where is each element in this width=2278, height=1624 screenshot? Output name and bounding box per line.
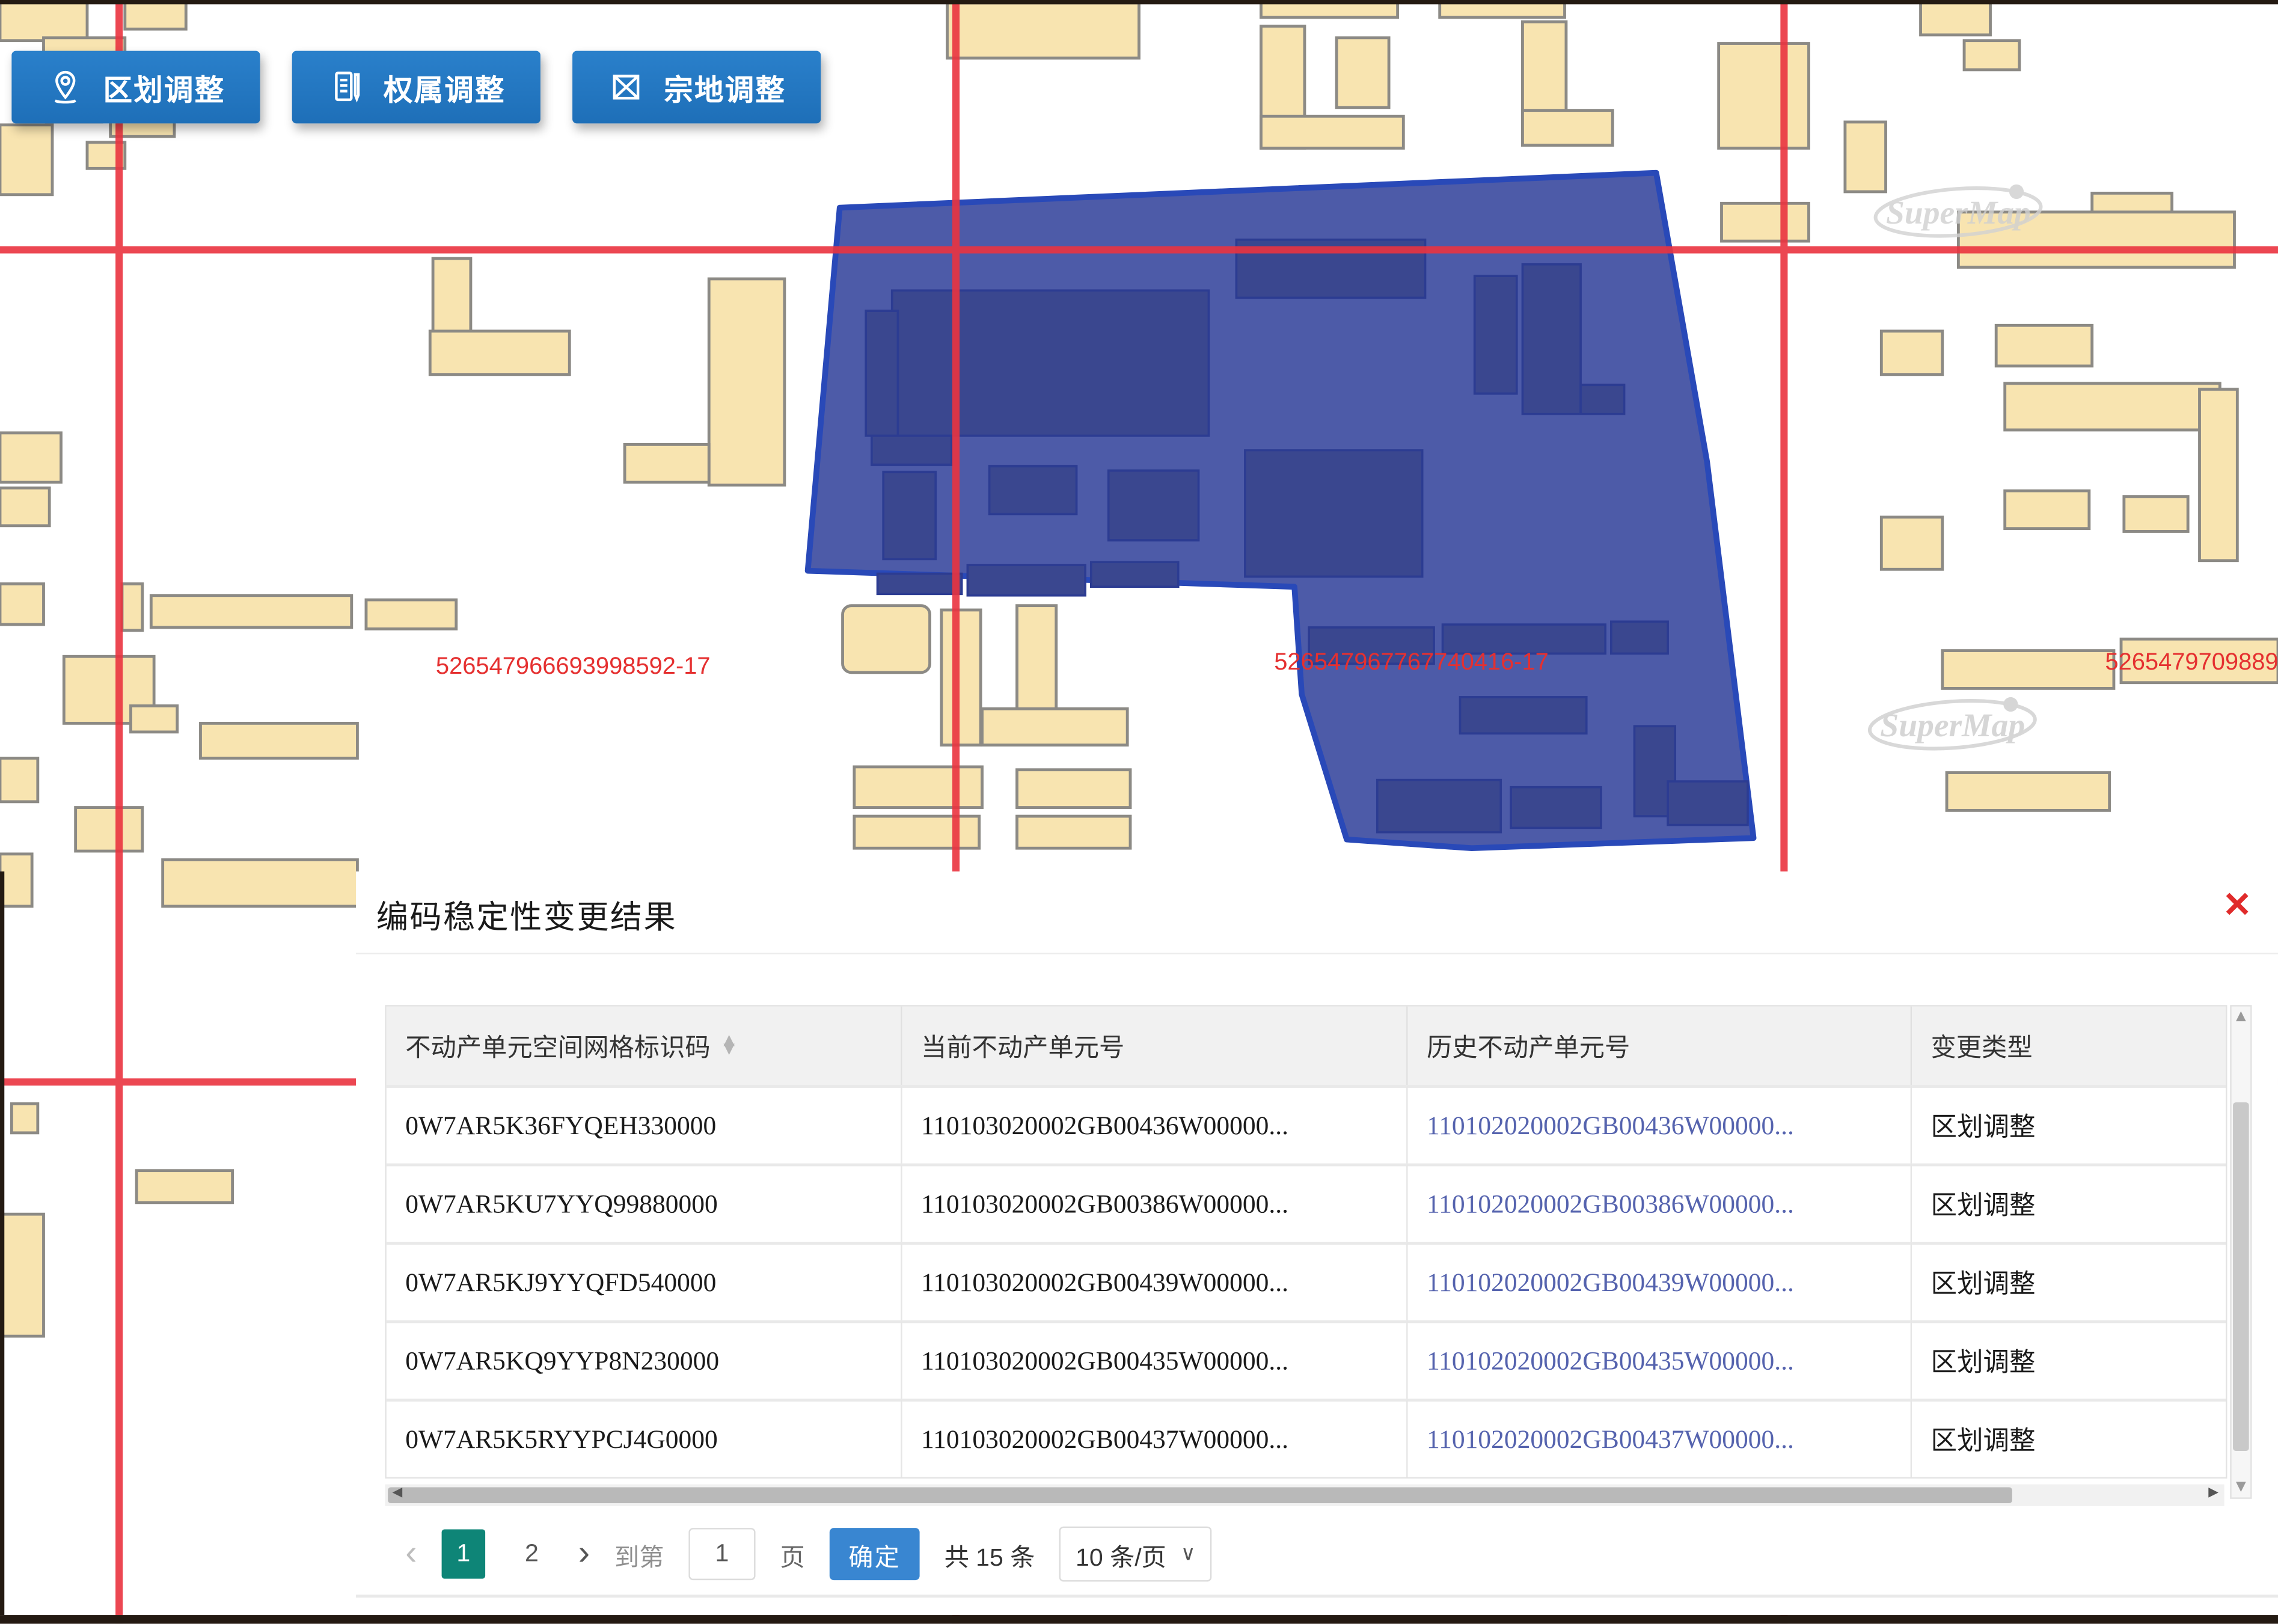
location-pin-icon xyxy=(46,69,84,106)
window-edge-left xyxy=(0,872,4,1615)
page-button-1[interactable]: 1 xyxy=(442,1530,485,1579)
confirm-button[interactable]: 确定 xyxy=(830,1528,920,1580)
panel-divider xyxy=(356,953,2278,954)
sort-icon[interactable]: ▲▼ xyxy=(723,1037,735,1055)
table-vertical-scrollbar[interactable]: ▲ ▼ xyxy=(2230,1005,2252,1499)
goto-page-input[interactable] xyxy=(688,1528,755,1580)
ownership-adjust-label: 权属调整 xyxy=(384,66,506,108)
ownership-adjust-button[interactable]: 权属调整 xyxy=(292,51,540,124)
map-toolbar: 区划调整 权属调整 宗地调整 xyxy=(11,51,821,124)
goto-page-label: 到第 xyxy=(614,1536,664,1572)
parcel-adjust-label: 宗地调整 xyxy=(664,66,786,108)
history-unit-link[interactable]: 110102020002GB00386W00000... xyxy=(1408,1164,1912,1242)
column-header-grid-code[interactable]: 不动产单元空间网格标识码 ▲▼ xyxy=(387,1007,902,1085)
page-unit-label: 页 xyxy=(780,1536,805,1572)
history-unit-link[interactable]: 110102020002GB00436W00000... xyxy=(1408,1085,1912,1163)
cell-current-unit: 110103020002GB00436W00000... xyxy=(902,1085,1408,1163)
cell-change-type: 区划调整 xyxy=(1912,1242,2226,1320)
svg-text:SuperMap: SuperMap xyxy=(1880,707,2025,744)
cell-change-type: 区划调整 xyxy=(1912,1164,2226,1242)
cell-current-unit: 110103020002GB00437W00000... xyxy=(902,1399,1408,1477)
selected-parcel-polygon[interactable] xyxy=(808,173,1754,849)
app-window: SuperMap SuperMap 526547966693998592-17 … xyxy=(0,0,2278,1624)
parcel-label: 5265479709889 xyxy=(2105,649,2278,675)
supermap-watermark: SuperMap xyxy=(1868,696,2036,754)
chevron-down-icon: ∨ xyxy=(1181,1542,1196,1566)
cell-current-unit: 110103020002GB00386W00000... xyxy=(902,1164,1408,1242)
cell-change-type: 区划调整 xyxy=(1912,1085,2226,1163)
close-icon[interactable]: ✕ xyxy=(2223,889,2252,924)
cell-grid-code: 0W7AR5K5RYYPCJ4G0000 xyxy=(387,1399,902,1477)
scroll-right-icon[interactable]: ▶ xyxy=(2208,1486,2218,1500)
change-result-panel: 编码稳定性变更结果 ✕ 不动产单元空间网格标识码 ▲▼ 当前不动产单元号 历史不… xyxy=(356,872,2278,1615)
total-count-label: 共 15 条 xyxy=(945,1536,1035,1572)
cell-grid-code: 0W7AR5KJ9YYQFD540000 xyxy=(387,1242,902,1320)
scroll-down-icon[interactable]: ▼ xyxy=(2232,1480,2250,1494)
cell-change-type: 区划调整 xyxy=(1912,1399,2226,1477)
column-header-current-unit: 当前不动产单元号 xyxy=(902,1007,1408,1085)
svg-text:SuperMap: SuperMap xyxy=(1886,194,2031,231)
window-edge-bottom xyxy=(0,1615,2278,1623)
parcel-frame-icon xyxy=(607,69,645,106)
cell-current-unit: 110103020002GB00439W00000... xyxy=(902,1242,1408,1320)
pagination-bar: ‹ 1 2 › 到第 页 确定 共 15 条 10 条/页 ∨ xyxy=(405,1528,1211,1580)
vertical-scroll-thumb[interactable] xyxy=(2233,1102,2249,1451)
change-result-table: 不动产单元空间网格标识码 ▲▼ 当前不动产单元号 历史不动产单元号 变更类型 0… xyxy=(385,1005,2227,1479)
page-size-dropdown[interactable]: 10 条/页 ∨ xyxy=(1059,1527,1211,1582)
cell-grid-code: 0W7AR5KU7YYQ99880000 xyxy=(387,1164,902,1242)
window-edge-top xyxy=(0,0,2278,4)
history-unit-link[interactable]: 110102020002GB00437W00000... xyxy=(1408,1399,1912,1477)
document-pen-icon xyxy=(327,69,365,106)
parcel-label: 526547967767740416-17 xyxy=(1274,649,1549,675)
prev-page-icon[interactable]: ‹ xyxy=(405,1537,417,1572)
panel-title: 编码稳定性变更结果 xyxy=(376,892,677,938)
panel-footer-line xyxy=(356,1595,2278,1598)
district-adjust-label: 区划调整 xyxy=(103,66,225,108)
history-unit-link[interactable]: 110102020002GB00435W00000... xyxy=(1408,1320,1912,1399)
page-size-value: 10 条/页 xyxy=(1076,1536,1166,1572)
horizontal-scroll-thumb[interactable] xyxy=(388,1487,2012,1503)
page-button-2[interactable]: 2 xyxy=(510,1530,553,1579)
next-page-icon[interactable]: › xyxy=(578,1537,590,1572)
parcel-label: 526547966693998592-17 xyxy=(436,653,711,679)
parcel-adjust-button[interactable]: 宗地调整 xyxy=(572,51,821,124)
cell-grid-code: 0W7AR5K36FYQEH330000 xyxy=(387,1085,902,1163)
cell-change-type: 区划调整 xyxy=(1912,1320,2226,1399)
scroll-left-icon[interactable]: ◀ xyxy=(392,1486,402,1500)
cell-grid-code: 0W7AR5KQ9YYP8N230000 xyxy=(387,1320,902,1399)
history-unit-link[interactable]: 110102020002GB00439W00000... xyxy=(1408,1242,1912,1320)
cell-current-unit: 110103020002GB00435W00000... xyxy=(902,1320,1408,1399)
table-horizontal-scrollbar[interactable]: ◀ ▶ xyxy=(385,1485,2224,1506)
district-adjust-button[interactable]: 区划调整 xyxy=(11,51,260,124)
column-header-history-unit: 历史不动产单元号 xyxy=(1408,1007,1912,1085)
scroll-up-icon[interactable]: ▲ xyxy=(2232,1009,2250,1024)
column-header-change-type: 变更类型 xyxy=(1912,1007,2226,1085)
